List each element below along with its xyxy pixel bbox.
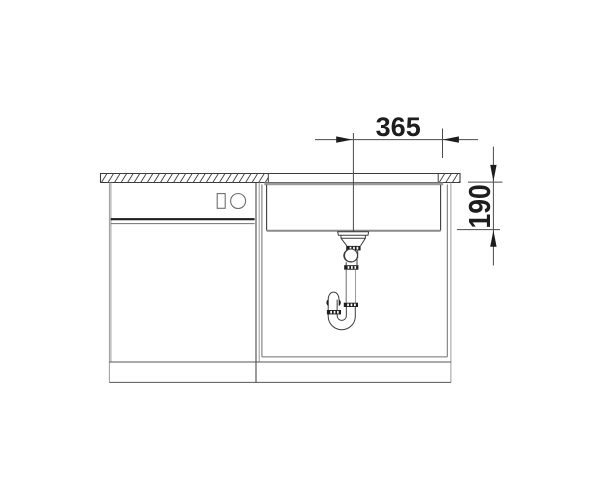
svg-text:365: 365 [376, 112, 421, 142]
svg-text:190: 190 [464, 184, 498, 228]
